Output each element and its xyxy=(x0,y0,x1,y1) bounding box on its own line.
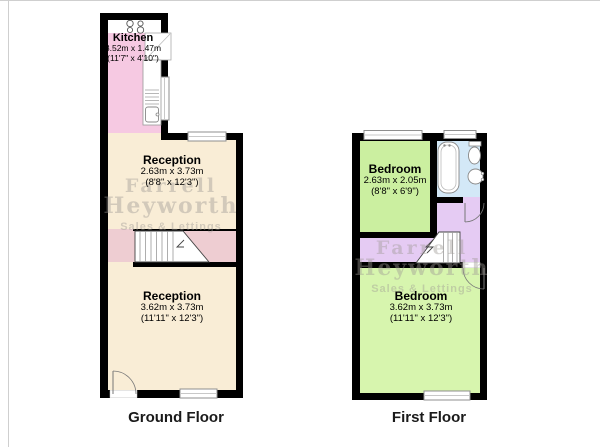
room-name: Bedroom xyxy=(390,290,453,303)
first-floor-caption: First Floor xyxy=(392,409,466,426)
room-dims-imperial: (11'11" x 12'3") xyxy=(390,314,453,325)
bedroom-front-label: Bedroom 2.63m x 2.05m (8'8" x 6'9") xyxy=(364,163,427,198)
room-name: Bedroom xyxy=(364,163,427,176)
reception-rear-room xyxy=(108,262,236,390)
ground-floor-caption: Ground Floor xyxy=(128,409,224,426)
floorplan-page: Farrell Heyworth Sales & Lettings Farrel… xyxy=(0,0,600,447)
sink-icon xyxy=(143,60,161,125)
kitchen-label: Kitchen 3.52m x 1.47m (11'7" x 4'10") xyxy=(105,32,161,63)
bathroom-window xyxy=(444,131,476,139)
reception-rear-label: Reception 3.62m x 3.73m (11'11" x 12'3") xyxy=(141,290,204,325)
ground-floor-plan xyxy=(100,13,243,398)
bathtub-icon xyxy=(438,142,459,193)
basin-icon xyxy=(468,169,484,184)
reception-rear-window xyxy=(180,389,217,398)
bedroom-front-window xyxy=(364,131,422,140)
bedroom-rear-label: Bedroom 3.62m x 3.73m (11'11" x 12'3") xyxy=(390,290,453,325)
toilet-icon xyxy=(469,142,482,165)
floorplan-drawing xyxy=(0,0,600,447)
room-dims-imperial: (8'8" x 12'3") xyxy=(141,178,204,189)
room-name: Reception xyxy=(141,290,204,303)
bedroom-rear-room xyxy=(360,268,480,393)
room-dims-imperial: (11'7" x 4'10") xyxy=(105,54,161,64)
room-dims-imperial: (11'11" x 12'3") xyxy=(141,314,204,325)
room-dims-imperial: (8'8" x 6'9") xyxy=(364,187,427,198)
reception-front-label: Reception 2.63m x 3.73m (8'8" x 12'3") xyxy=(141,154,204,189)
bedroom-rear-window xyxy=(424,391,470,400)
room-name: Reception xyxy=(141,154,204,167)
reception-front-window xyxy=(188,132,226,141)
